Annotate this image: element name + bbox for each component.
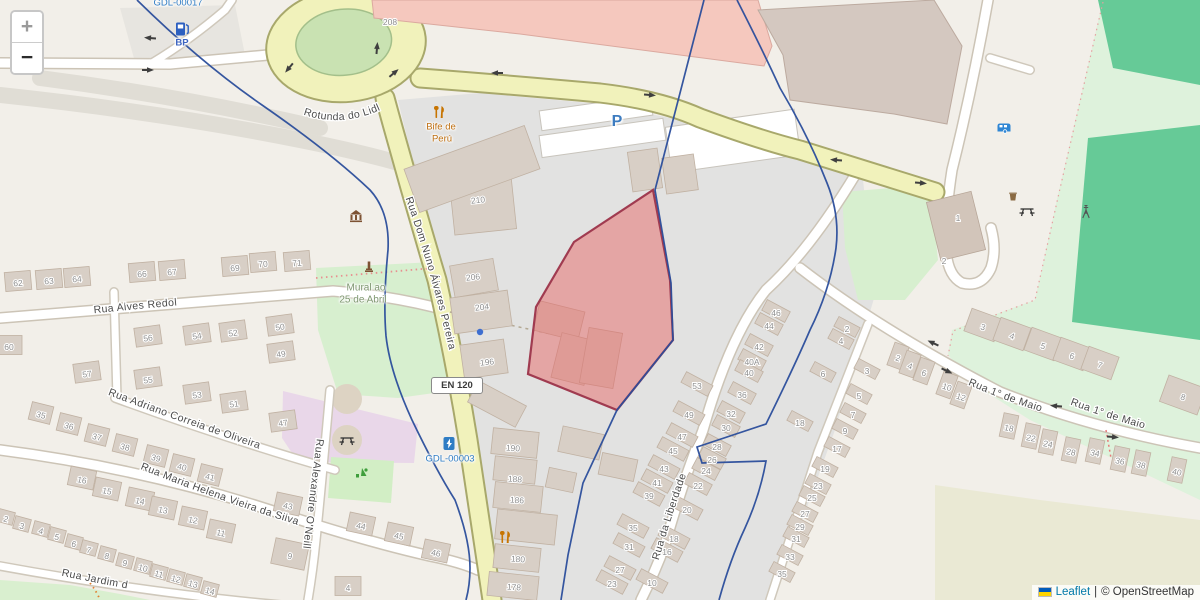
- house-number: 23: [813, 481, 823, 491]
- house-number: 7: [851, 410, 856, 420]
- house-number: 64: [72, 274, 83, 285]
- house-number: 40: [744, 368, 754, 378]
- house-number: 188: [508, 474, 523, 485]
- leaflet-link[interactable]: Leaflet: [1056, 586, 1091, 598]
- house-number: 39: [644, 491, 654, 501]
- house-number: 178: [507, 582, 522, 593]
- house-number: 210: [470, 194, 485, 205]
- house-number: 41: [652, 478, 662, 488]
- ukraine-flag-icon: [1038, 587, 1052, 597]
- house-number: 1: [956, 213, 961, 223]
- house-number: 23: [607, 579, 617, 589]
- house-number: 27: [800, 509, 810, 519]
- house-number: 17: [832, 444, 842, 454]
- house-number: 208: [383, 17, 397, 27]
- charge-icon: [444, 437, 455, 450]
- zoom-out-button[interactable]: −: [12, 43, 42, 73]
- house-number: 32: [726, 409, 736, 419]
- house-number: 2: [845, 324, 850, 334]
- house-number: 4: [839, 336, 844, 346]
- osm-copyright: © OpenStreetMap: [1101, 586, 1194, 598]
- attribution-bar: Leaflet | © OpenStreetMap: [1032, 585, 1200, 600]
- house-number: 47: [677, 432, 687, 442]
- house-number: 46: [771, 308, 781, 318]
- house-number: 206: [465, 271, 480, 282]
- house-number: 66: [137, 269, 148, 280]
- house-number: 20: [682, 505, 692, 515]
- house-number: 56: [143, 332, 154, 343]
- house-number: 63: [44, 276, 55, 287]
- tree-circle: [332, 384, 362, 414]
- house-number: 18: [795, 418, 805, 428]
- house-number: 33: [785, 552, 795, 562]
- house-number: 196: [479, 356, 494, 367]
- house-number: 51: [229, 398, 240, 409]
- house-number: 10: [647, 578, 657, 588]
- house-number: 53: [692, 381, 702, 391]
- house-number: 26: [707, 455, 717, 465]
- house-number: 31: [791, 534, 801, 544]
- house-number: 49: [684, 410, 694, 420]
- dot-icon: [477, 329, 483, 335]
- house-number: 60: [4, 342, 14, 352]
- house-number: 71: [292, 258, 303, 269]
- house-number: 204: [474, 301, 489, 312]
- house-number: 42: [754, 342, 764, 352]
- house-number: 180: [511, 554, 526, 565]
- house-number: 47: [278, 417, 289, 428]
- playground-area: [328, 457, 394, 503]
- zoom-control: + −: [10, 10, 44, 75]
- house-number: 57: [82, 368, 93, 379]
- house-number: 43: [659, 464, 669, 474]
- house-number: 55: [143, 374, 154, 385]
- house-number: 3: [865, 366, 870, 376]
- house-number: 4: [346, 583, 351, 593]
- house-number: 44: [764, 321, 774, 331]
- house-number: 67: [167, 267, 178, 278]
- house-number: 52: [228, 327, 239, 338]
- house-number: 19: [820, 464, 830, 474]
- zoom-in-button[interactable]: +: [12, 12, 42, 43]
- house-number: 53: [192, 389, 203, 400]
- house-number: 70: [258, 259, 269, 270]
- house-number: 49: [276, 348, 287, 359]
- house-number: 62: [13, 278, 24, 289]
- house-number: 50: [275, 321, 286, 332]
- house-number: 31: [624, 542, 634, 552]
- house-number: 27: [615, 565, 625, 575]
- house-number: 9: [843, 426, 848, 436]
- house-number: 5: [857, 391, 862, 401]
- house-number: 22: [693, 481, 703, 491]
- house-number: 24: [701, 466, 711, 476]
- house-number: 190: [506, 443, 521, 454]
- house-number: 40A: [744, 357, 759, 367]
- house-number: 29: [795, 522, 805, 532]
- road-ref-badge-en120: EN 120: [431, 377, 483, 394]
- house-number: 45: [668, 446, 678, 456]
- house-number: 35: [628, 523, 638, 533]
- map-canvas: 6263646667697071605654525049575553514735…: [0, 0, 1200, 600]
- house-number: 6: [821, 369, 826, 379]
- house-number: 2: [942, 256, 947, 266]
- house-number: 69: [230, 263, 241, 274]
- tree-circle: [332, 425, 362, 455]
- attribution-divider: |: [1094, 586, 1097, 598]
- leaflet-map[interactable]: 6263646667697071605654525049575553514735…: [0, 0, 1200, 600]
- house-number: 36: [737, 390, 747, 400]
- house-number: 18: [669, 534, 679, 544]
- house-number: 54: [192, 330, 203, 341]
- house-number: 186: [510, 495, 525, 506]
- house-number: 25: [807, 493, 817, 503]
- house-number: 35: [777, 569, 787, 579]
- field-dark-patch: [1072, 125, 1200, 340]
- house-number: 30: [721, 423, 731, 433]
- house-number: 28: [712, 442, 722, 452]
